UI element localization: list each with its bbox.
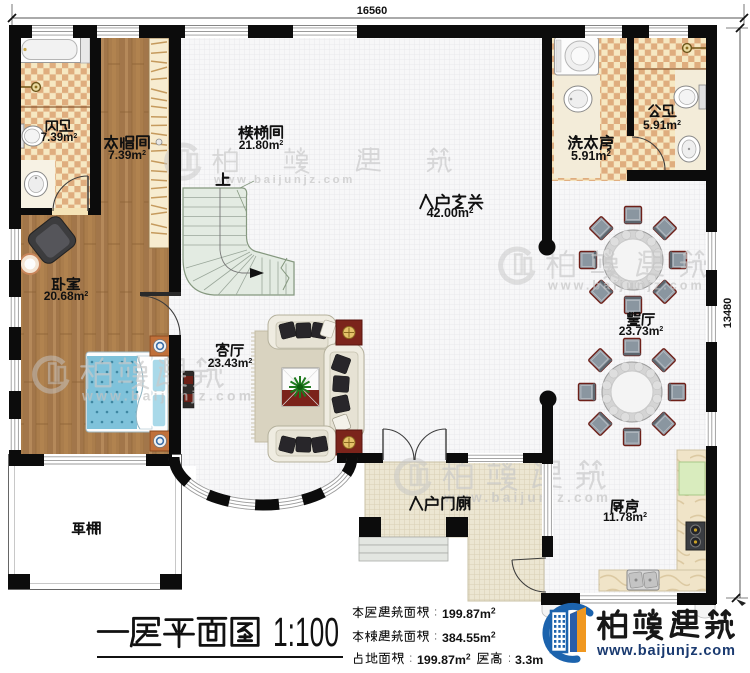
svg-text:16560: 16560 bbox=[357, 5, 388, 17]
svg-text:384.55m2: 384.55m2 bbox=[442, 630, 496, 646]
svg-text:5.91m2: 5.91m2 bbox=[571, 149, 611, 163]
svg-text:7.39m2: 7.39m2 bbox=[108, 148, 146, 162]
svg-text:23.73m2: 23.73m2 bbox=[619, 324, 664, 338]
svg-text:3.3m: 3.3m bbox=[515, 653, 543, 667]
svg-text:21.80m2: 21.80m2 bbox=[239, 138, 284, 152]
svg-text:11.78m2: 11.78m2 bbox=[603, 510, 647, 524]
svg-text:199.87m2: 199.87m2 bbox=[417, 652, 471, 668]
svg-text:199.87m2: 199.87m2 bbox=[442, 606, 496, 622]
svg-text:42.00m2: 42.00m2 bbox=[427, 206, 474, 220]
svg-text:20.68m2: 20.68m2 bbox=[44, 289, 89, 303]
svg-text:5.91m2: 5.91m2 bbox=[643, 118, 681, 132]
svg-text:www.baijunjz.com: www.baijunjz.com bbox=[547, 278, 705, 292]
svg-text:13480: 13480 bbox=[722, 298, 734, 329]
svg-text:www.baijunjz.com: www.baijunjz.com bbox=[596, 643, 736, 659]
svg-text:www.baijunjz.com: www.baijunjz.com bbox=[213, 174, 355, 186]
svg-text:1:100: 1:100 bbox=[273, 609, 339, 655]
svg-text:www.baijunjz.com: www.baijunjz.com bbox=[81, 388, 254, 404]
svg-text:7.39m2: 7.39m2 bbox=[41, 132, 78, 144]
svg-text:23.43m2: 23.43m2 bbox=[208, 356, 253, 370]
